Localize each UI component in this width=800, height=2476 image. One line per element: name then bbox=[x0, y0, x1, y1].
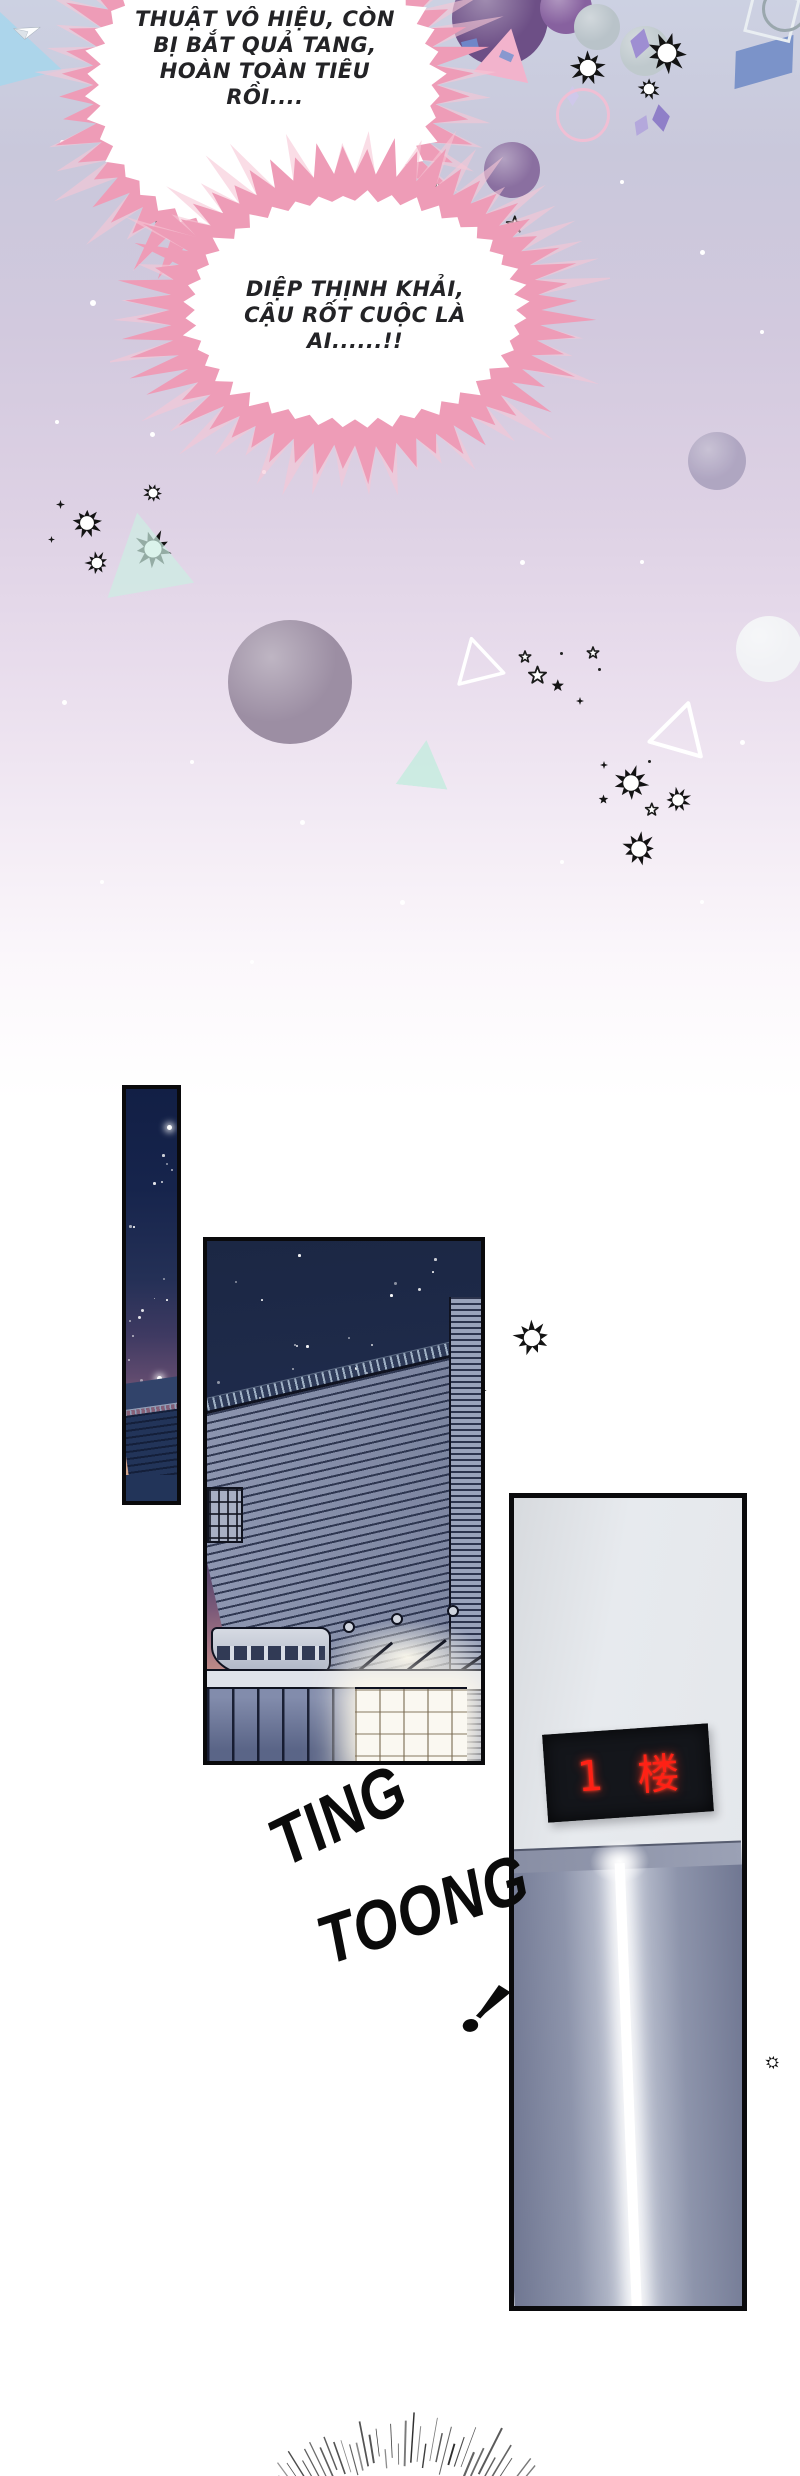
elevator-door-right bbox=[625, 1864, 747, 2311]
comic-page: THUẬT VÔ HIỆU, CÒN BỊ BẮT QUẢ TANG, HOÀN… bbox=[0, 0, 800, 2476]
speech-bubble-2-text: DIỆP THỊNH KHẢI, CẬU RỐT CUỘC LÀ AI.....… bbox=[205, 276, 505, 354]
facade-window-detail bbox=[207, 1487, 243, 1543]
speech-bubble-1-text: THUẬT VÔ HIỆU, CÒN BỊ BẮT QUẢ TANG, HOÀN… bbox=[115, 6, 415, 110]
lit-entrance-window bbox=[355, 1687, 467, 1763]
elevator-door-left bbox=[509, 1869, 632, 2311]
rod-pin bbox=[447, 1605, 459, 1617]
panel-night-sky-strip bbox=[122, 1085, 181, 1505]
floor-number: 1 bbox=[575, 1750, 604, 1801]
window-band bbox=[217, 1646, 325, 1660]
bubble-line: RỒI.... bbox=[115, 84, 415, 110]
bubble-line: DIỆP THỊNH KHẢI, bbox=[205, 276, 505, 302]
silhouette-base bbox=[126, 1475, 177, 1503]
burst-icon bbox=[764, 2054, 781, 2076]
burst-icon bbox=[512, 1318, 552, 1363]
elevator-doors bbox=[509, 1840, 747, 2311]
panel-elevator: 1 楼 bbox=[509, 1493, 747, 2311]
rod-pin bbox=[343, 1621, 355, 1633]
speed-lines bbox=[150, 2398, 650, 2476]
bright-star bbox=[167, 1125, 172, 1130]
panel-building-exterior bbox=[203, 1237, 485, 1765]
floor-unit: 楼 bbox=[635, 1739, 681, 1803]
bubble-line: AI......!! bbox=[205, 328, 505, 354]
door-gap-glow bbox=[589, 1838, 651, 1884]
rod-pin bbox=[391, 1613, 403, 1625]
bubble-line: BỊ BẮT QUẢ TANG, bbox=[115, 32, 415, 58]
sfx-toong: TOONG bbox=[314, 1837, 535, 1982]
bubble-line: HOÀN TOÀN TIÊU bbox=[115, 58, 415, 84]
building-entrance-level bbox=[207, 1653, 481, 1761]
bubble-line: CẬU RỐT CUỘC LÀ bbox=[205, 302, 505, 328]
dark-glass-wall bbox=[207, 1687, 355, 1763]
bubble-line: THUẬT VÔ HIỆU, CÒN bbox=[115, 6, 415, 32]
sfx-ting: TING bbox=[262, 1747, 416, 1885]
elevator-floor-display: 1 楼 bbox=[542, 1723, 714, 1822]
